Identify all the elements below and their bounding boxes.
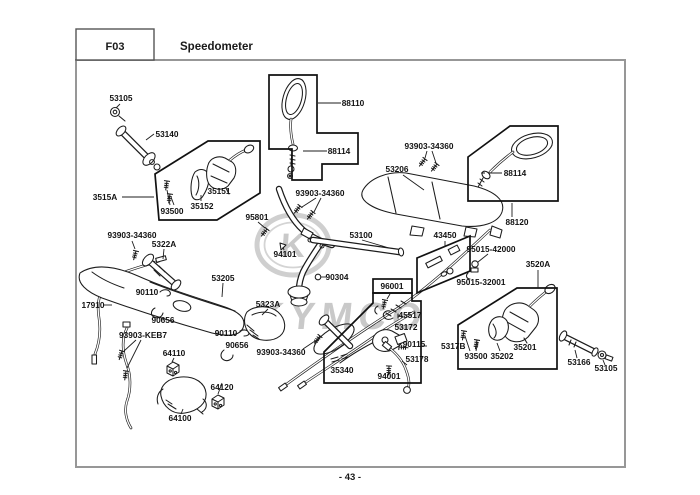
part-label-93500-b: 93500	[464, 351, 487, 361]
part-label-35340: 35340	[330, 365, 353, 375]
part-label-64100: 64100	[168, 413, 191, 423]
part-label-64110: 64110	[163, 348, 186, 358]
part-label-88114-b: 88114	[504, 168, 527, 178]
section-code: F03	[106, 41, 125, 53]
part-label-45517: 45517	[398, 310, 421, 320]
part-label-90656-b: 90656	[225, 340, 248, 350]
page-number: - 43 -	[339, 472, 361, 483]
part-label-53178: 53178	[405, 354, 428, 364]
part-label-90304: 90304	[325, 272, 348, 282]
part-label-53172: 53172	[394, 322, 417, 332]
part-label-35151: 35151	[207, 186, 230, 196]
part-label-5317B: 5317B	[441, 341, 465, 351]
part-label-93903-KEB7: 93903-KEB7	[119, 330, 167, 340]
part-label-96001: 96001	[380, 281, 403, 291]
part-label-53205: 53205	[211, 273, 234, 283]
part-label-90110-a: 90110	[136, 287, 159, 297]
part-label-93500-a: 93500	[160, 206, 183, 216]
part-label-90110-b: 90110	[215, 328, 238, 338]
part-label-64120: 64120	[210, 382, 233, 392]
part-label-53100: 53100	[349, 230, 372, 240]
part-label-93903-34360-d: 93903-34360	[257, 347, 306, 357]
part-label-53105-b: 53105	[594, 363, 617, 373]
part-label-5323A: 5323A	[256, 299, 280, 309]
box-left-mirror	[269, 75, 358, 180]
part-label-35202: 35202	[490, 351, 513, 361]
part-label-3520A: 3520A	[526, 259, 550, 269]
part-label-5322A: 5322A	[152, 239, 176, 249]
part-label-88114-a: 88114	[328, 146, 351, 156]
part-label-93903-34360-c: 93903-34360	[108, 230, 157, 240]
part-label-53140: 53140	[155, 129, 178, 139]
part-label-94101: 94101	[273, 249, 296, 259]
part-label-90115: 90115	[403, 339, 426, 349]
page-title: Speedometer	[180, 41, 253, 53]
part-label-95801: 95801	[245, 212, 268, 222]
grip-weight-art	[111, 108, 161, 171]
part-label-88120: 88120	[505, 217, 528, 227]
part-label-3515A: 3515A	[93, 192, 117, 202]
part-label-95015-42000: 95015-42000	[467, 244, 516, 254]
part-label-88110: 88110	[342, 98, 365, 108]
rear-handle-cover-art	[362, 173, 503, 238]
part-label-90656-a: 90656	[151, 315, 174, 325]
parts-diagram: K KYMCO	[0, 0, 700, 495]
part-label-35152: 35152	[190, 201, 213, 211]
part-label-43450: 43450	[433, 230, 456, 240]
part-label-94001: 94001	[377, 371, 400, 381]
left-mirror-art	[278, 76, 311, 179]
part-label-17910: 17910	[81, 300, 104, 310]
part-label-53166: 53166	[567, 357, 590, 367]
part-label-35201: 35201	[513, 342, 536, 352]
part-label-53105-a: 53105	[109, 93, 132, 103]
part-label-95015-32001: 95015-32001	[457, 277, 506, 287]
part-label-93903-34360-b: 93903-34360	[405, 141, 454, 151]
part-label-93903-34360-a: 93903-34360	[296, 188, 345, 198]
part-label-53206: 53206	[385, 164, 408, 174]
